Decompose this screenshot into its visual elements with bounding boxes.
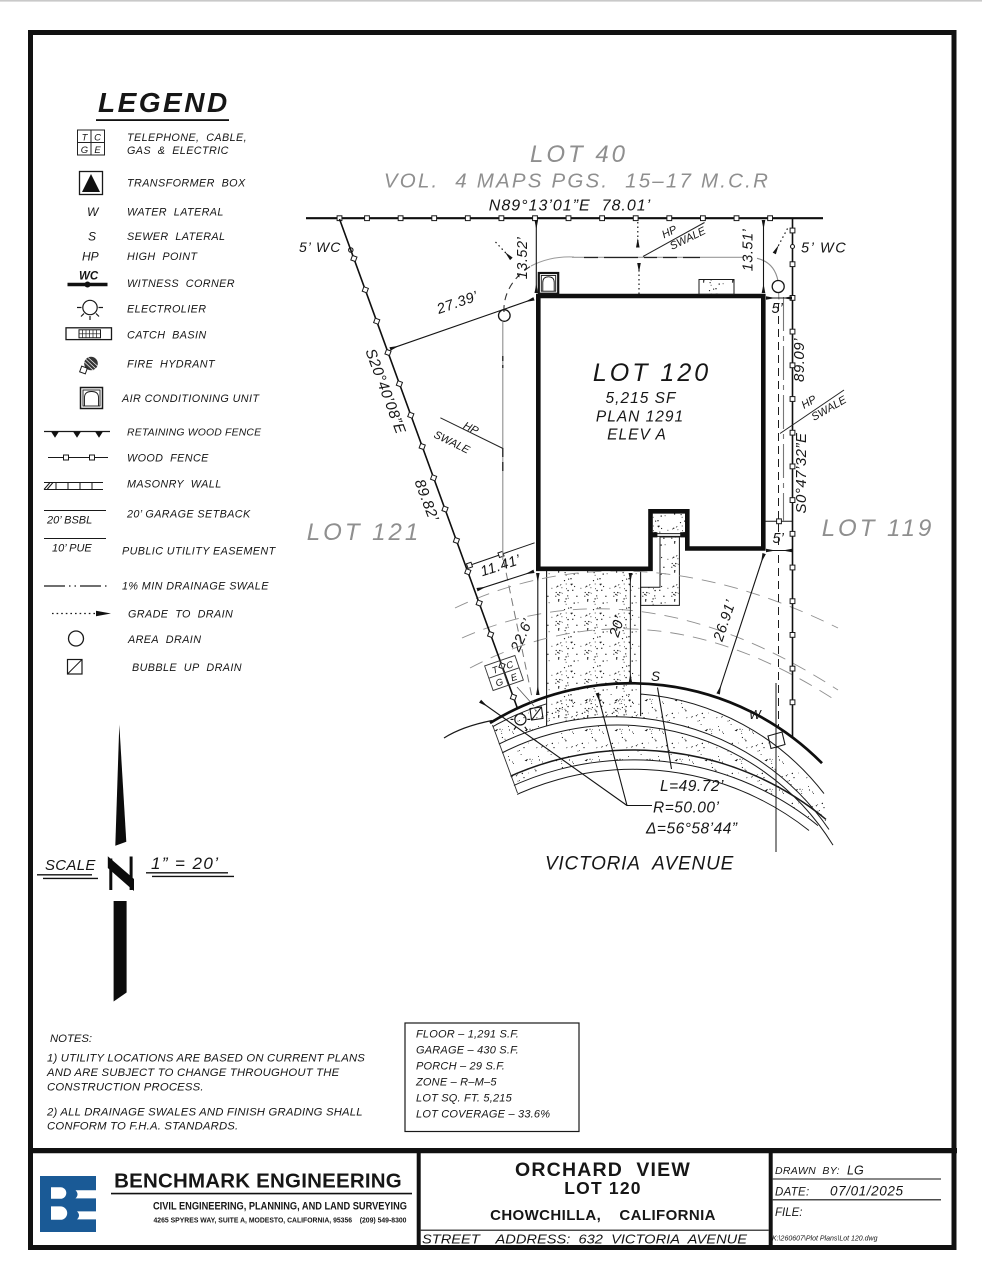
svg-text:VOL. 4 MAPS PGS. 15–17 M.C.R: VOL. 4 MAPS PGS. 15–17 M.C.R <box>384 170 770 193</box>
svg-text:C: C <box>94 133 101 144</box>
svg-text:LOT 119: LOT 119 <box>822 515 935 542</box>
svg-text:SEWER LATERAL: SEWER LATERAL <box>127 231 225 243</box>
svg-text:ELEV A: ELEV A <box>607 427 667 444</box>
svg-text:E: E <box>94 145 101 156</box>
svg-text:GARAGE – 430 S.F.: GARAGE – 430 S.F. <box>416 1045 519 1057</box>
svg-text:WITNESS CORNER: WITNESS CORNER <box>127 278 235 290</box>
svg-text:1% MIN DRAINAGE SWALE: 1% MIN DRAINAGE SWALE <box>122 581 269 593</box>
svg-text:S: S <box>88 230 96 244</box>
svg-text:2) ALL DRAINAGE SWALES AND FIN: 2) ALL DRAINAGE SWALES AND FINISH GRADIN… <box>46 1107 363 1119</box>
svg-text:TRANSFORMER BOX: TRANSFORMER BOX <box>127 178 246 190</box>
svg-text:SCALE: SCALE <box>45 857 96 874</box>
svg-text:PORCH – 29 S.F.: PORCH – 29 S.F. <box>416 1061 505 1073</box>
svg-text:CHOWCHILLA, CALIFORNIA: CHOWCHILLA, CALIFORNIA <box>490 1207 716 1224</box>
svg-text:LEGEND: LEGEND <box>98 87 230 118</box>
svg-text:RETAINING WOOD FENCE: RETAINING WOOD FENCE <box>127 428 262 439</box>
svg-text:1” = 20’: 1” = 20’ <box>151 854 219 873</box>
svg-text:DATE:: DATE: <box>775 1187 810 1199</box>
svg-text:1) UTILITY LOCATIONS ARE BASED: 1) UTILITY LOCATIONS ARE BASED ON CURREN… <box>47 1053 365 1065</box>
svg-text:WOOD FENCE: WOOD FENCE <box>127 453 209 465</box>
svg-text:ZONE – R–M–5: ZONE – R–M–5 <box>415 1077 497 1089</box>
svg-text:W: W <box>87 205 100 219</box>
svg-text:G: G <box>81 145 88 156</box>
svg-text:N89°13’01”E 78.01’: N89°13’01”E 78.01’ <box>489 198 651 215</box>
svg-text:S0°47’32”E: S0°47’32”E <box>793 432 810 514</box>
svg-text:10’ PUE: 10’ PUE <box>52 543 92 555</box>
svg-text:HIGH POINT: HIGH POINT <box>127 251 198 263</box>
svg-text:4265 SPYRES WAY, SUITE A, MODE: 4265 SPYRES WAY, SUITE A, MODESTO, CALIF… <box>154 1216 407 1225</box>
svg-text:20’ GARAGE SETBACK: 20’ GARAGE SETBACK <box>126 509 251 521</box>
svg-text:LOT COVERAGE – 33.6%: LOT COVERAGE – 33.6% <box>416 1109 550 1121</box>
svg-text:HP: HP <box>82 250 99 264</box>
svg-text:5’ WC: 5’ WC <box>299 239 341 255</box>
svg-text:5’ WC: 5’ WC <box>801 241 847 257</box>
svg-text:AIR CONDITIONING UNIT: AIR CONDITIONING UNIT <box>121 393 260 405</box>
svg-text:VICTORIA AVENUE: VICTORIA AVENUE <box>545 854 734 875</box>
svg-text:CONFORM TO F.H.A. STANDARDS.: CONFORM TO F.H.A. STANDARDS. <box>47 1121 238 1133</box>
svg-text:LOT SQ. FT. 5,215: LOT SQ. FT. 5,215 <box>416 1093 513 1105</box>
svg-text:89.09’: 89.09’ <box>791 338 808 382</box>
svg-text:5,215 SF: 5,215 SF <box>606 390 677 407</box>
svg-text:5’: 5’ <box>772 301 784 317</box>
svg-text:LOT 120: LOT 120 <box>564 1178 641 1198</box>
svg-text:CONSTRUCTION PROCESS.: CONSTRUCTION PROCESS. <box>47 1082 204 1094</box>
svg-text:DRAWN BY:: DRAWN BY: <box>775 1165 840 1177</box>
svg-text:BENCHMARK ENGINEERING: BENCHMARK ENGINEERING <box>114 1170 402 1193</box>
svg-text:CIVIL ENGINEERING, PLANNING, A: CIVIL ENGINEERING, PLANNING, AND LAND SU… <box>153 1201 407 1213</box>
svg-text:AREA DRAIN: AREA DRAIN <box>127 634 201 646</box>
svg-text:LOT 121: LOT 121 <box>307 519 421 546</box>
svg-text:07/01/2025: 07/01/2025 <box>830 1184 904 1199</box>
svg-text:WC: WC <box>79 271 99 283</box>
svg-text:AND ARE SUBJECT TO CHANGE THRO: AND ARE SUBJECT TO CHANGE THROUGHOUT THE <box>46 1067 340 1079</box>
svg-text:R=50.00’: R=50.00’ <box>653 800 720 817</box>
svg-text:PUBLIC UTILITY EASEMENT: PUBLIC UTILITY EASEMENT <box>122 546 277 558</box>
svg-text:LG: LG <box>847 1164 864 1178</box>
svg-text:MASONRY WALL: MASONRY WALL <box>127 479 222 491</box>
svg-text:GAS & ELECTRIC: GAS & ELECTRIC <box>127 145 229 157</box>
svg-text:20’ BSBL: 20’ BSBL <box>46 515 92 527</box>
svg-text:13.52’: 13.52’ <box>515 236 531 279</box>
svg-text:L=49.72’: L=49.72’ <box>660 778 724 795</box>
svg-text:FIRE HYDRANT: FIRE HYDRANT <box>127 359 216 371</box>
svg-text:S: S <box>651 669 660 684</box>
svg-text:TELEPHONE, CABLE,: TELEPHONE, CABLE, <box>127 132 247 144</box>
svg-text:GRADE TO DRAIN: GRADE TO DRAIN <box>128 609 233 621</box>
svg-text:CATCH BASIN: CATCH BASIN <box>127 330 207 342</box>
svg-text:FLOOR – 1,291 S.F.: FLOOR – 1,291 S.F. <box>416 1029 519 1041</box>
svg-text:BUBBLE UP DRAIN: BUBBLE UP DRAIN <box>132 662 242 674</box>
svg-text:LOT 120: LOT 120 <box>593 359 711 387</box>
svg-text:LOT 40: LOT 40 <box>530 141 628 168</box>
svg-text:STREET ADDRESS: 632 VICTO: STREET ADDRESS: 632 VICTORIA AVENUE <box>422 1232 747 1247</box>
svg-text:K:\260607\Plot Plans\Lot 120.d: K:\260607\Plot Plans\Lot 120.dwg <box>772 1236 878 1243</box>
svg-text:WATER LATERAL: WATER LATERAL <box>127 207 224 219</box>
svg-text:W: W <box>749 708 762 722</box>
svg-text:13.51’: 13.51’ <box>741 228 757 271</box>
svg-text:NOTES:: NOTES: <box>50 1033 92 1045</box>
svg-text:PLAN 1291: PLAN 1291 <box>596 409 684 426</box>
svg-text:FILE:: FILE: <box>775 1207 802 1219</box>
svg-text:Δ=56°58’44”: Δ=56°58’44” <box>645 821 738 838</box>
svg-text:ELECTROLIER: ELECTROLIER <box>127 304 206 316</box>
